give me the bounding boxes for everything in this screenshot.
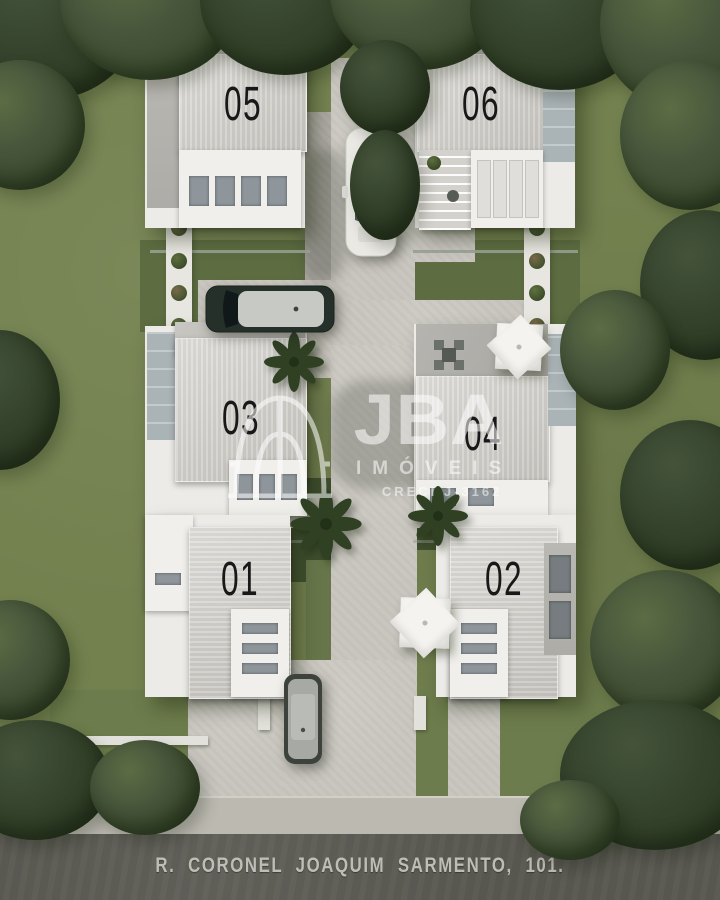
bush-icon	[171, 285, 187, 301]
glass-pane	[509, 160, 523, 218]
skylight	[241, 176, 261, 206]
unit-number: 05	[224, 81, 262, 129]
palm-tree-icon	[406, 484, 470, 548]
skylight	[242, 623, 278, 634]
skylight	[461, 643, 497, 654]
palm-tree-icon	[262, 330, 326, 394]
skylight	[267, 176, 287, 206]
skylight	[259, 474, 275, 500]
tree-canopy	[350, 130, 420, 240]
tree-canopy	[560, 290, 670, 410]
patio-umbrella	[399, 597, 451, 649]
bush-icon	[171, 253, 187, 269]
skylight	[461, 623, 497, 634]
main-roof: 04	[416, 376, 550, 482]
skylight	[189, 176, 209, 206]
unit-number: 03	[222, 395, 260, 443]
pergola	[419, 150, 471, 230]
side-wing	[544, 543, 576, 655]
unit-number: 02	[485, 556, 523, 604]
solar-panel	[549, 555, 571, 593]
table-icon	[442, 348, 456, 362]
glass-pane	[477, 160, 491, 218]
unit-number: 06	[462, 81, 500, 129]
skylight	[155, 573, 181, 585]
tree-canopy	[520, 780, 620, 860]
glass-pane	[525, 160, 539, 218]
parked-gray-car-icon	[282, 672, 324, 766]
skylight	[215, 176, 235, 206]
patio-table-icon	[447, 190, 459, 202]
skylight	[242, 643, 278, 654]
patio-umbrella	[495, 323, 543, 371]
glass-pane	[493, 160, 507, 218]
tree-canopy	[0, 330, 60, 470]
garage-roof	[231, 609, 289, 697]
skylight	[468, 488, 494, 506]
garage-roof	[179, 150, 301, 228]
unit-number: 01	[221, 556, 259, 604]
bush-icon	[529, 253, 545, 269]
entry-wing	[145, 515, 193, 611]
skylight	[237, 474, 253, 500]
tree-canopy	[90, 740, 200, 835]
unit-number: 04	[464, 411, 502, 459]
skylight	[461, 663, 497, 674]
sunroom-roof	[471, 150, 543, 228]
potted-plant-icon	[427, 156, 441, 170]
solar-panel	[549, 601, 571, 639]
palm-tree-icon	[288, 486, 364, 562]
dark-suv-icon	[204, 282, 336, 336]
tree-canopy	[340, 40, 430, 135]
skylight	[242, 663, 278, 674]
aerial-site-render: R. CORONEL JOAQUIM SARMENTO, 101. 05	[0, 0, 720, 900]
tree-canopy	[620, 420, 720, 570]
yard-fence	[413, 250, 578, 253]
outdoor-dining-set	[434, 340, 466, 372]
bush-icon	[529, 285, 545, 301]
glass-wing	[147, 332, 175, 440]
